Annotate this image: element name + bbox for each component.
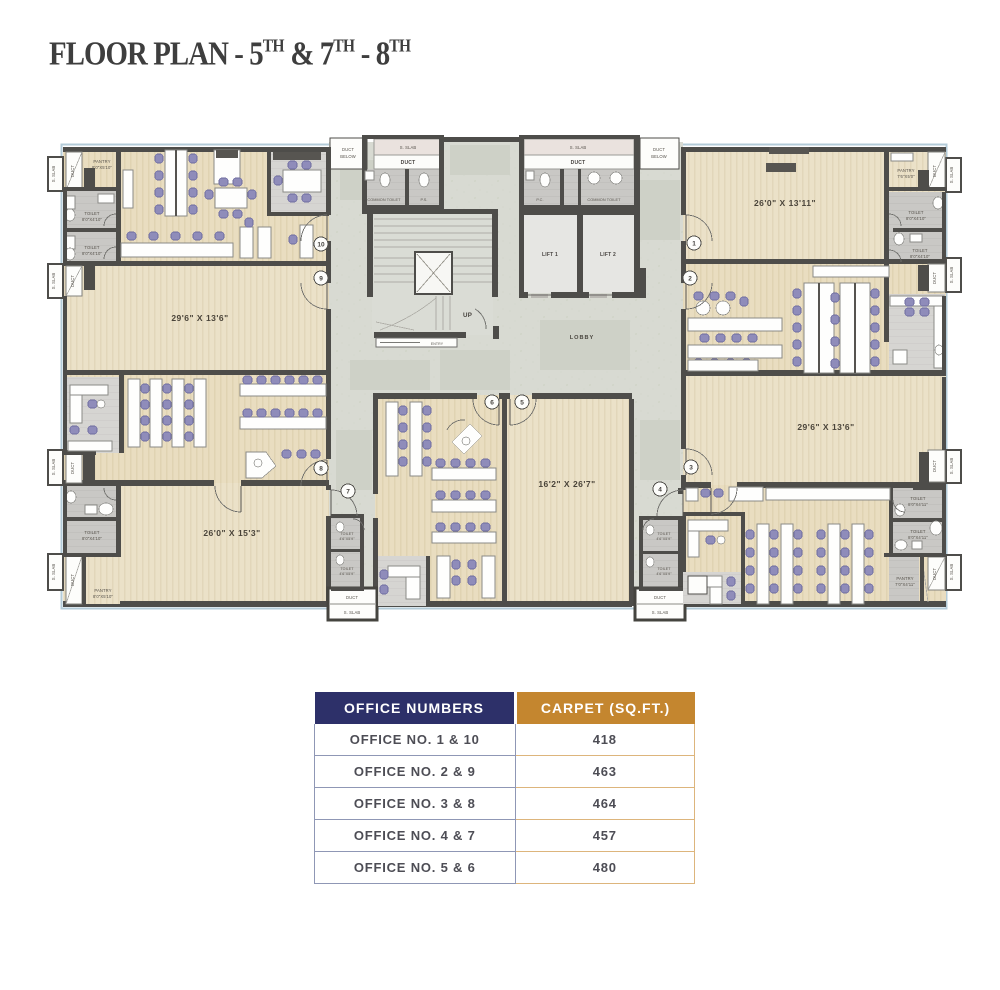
svg-text:5: 5 <box>520 400 524 407</box>
svg-text:S. SLAB: S. SLAB <box>949 267 954 284</box>
svg-text:8'0"X5'10": 8'0"X5'10" <box>93 594 113 599</box>
svg-text:S. SLAB: S. SLAB <box>51 166 56 183</box>
svg-text:7'0"X4'11": 7'0"X4'11" <box>895 582 915 587</box>
svg-text:P.S.: P.S. <box>420 198 427 202</box>
svg-text:TOILET: TOILET <box>912 248 928 253</box>
svg-text:TOILET: TOILET <box>657 532 671 536</box>
svg-text:6: 6 <box>490 400 494 407</box>
svg-text:TOILET: TOILET <box>84 530 100 535</box>
svg-text:PANTRY: PANTRY <box>93 159 110 164</box>
svg-text:TOILET: TOILET <box>84 245 100 250</box>
svg-text:S. SLAB: S. SLAB <box>949 167 954 184</box>
svg-text:DUCT: DUCT <box>70 574 75 586</box>
svg-text:8: 8 <box>319 466 323 473</box>
svg-text:8'0"X4'10": 8'0"X4'10" <box>82 536 102 541</box>
svg-text:29'6" X 13'6": 29'6" X 13'6" <box>797 422 854 432</box>
svg-text:DUCT: DUCT <box>932 165 937 177</box>
svg-text:COMMON TOILET: COMMON TOILET <box>587 198 621 202</box>
svg-text:LOBBY: LOBBY <box>570 335 595 341</box>
svg-text:TOILET: TOILET <box>340 532 354 536</box>
svg-text:4'6"X5'9": 4'6"X5'9" <box>339 537 355 541</box>
svg-text:S. SLAB: S. SLAB <box>570 145 587 150</box>
svg-text:TOILET: TOILET <box>908 210 924 215</box>
svg-text:8'0"X4'10": 8'0"X4'10" <box>910 254 930 259</box>
svg-text:16'2" X 26'7": 16'2" X 26'7" <box>538 479 595 489</box>
svg-text:DUCT: DUCT <box>571 160 586 166</box>
svg-text:LIFT 2: LIFT 2 <box>600 252 616 258</box>
svg-text:TOILET: TOILET <box>910 496 926 501</box>
svg-text:8'0"X4'10": 8'0"X4'10" <box>82 217 102 222</box>
svg-text:PANTRY: PANTRY <box>896 576 913 581</box>
svg-text:8'0"X4'10": 8'0"X4'10" <box>906 216 926 221</box>
svg-text:P.C.: P.C. <box>536 198 543 202</box>
svg-text:DUCT: DUCT <box>932 460 937 472</box>
svg-text:COMMON TOILET: COMMON TOILET <box>367 198 401 202</box>
svg-text:TOILET: TOILET <box>910 529 926 534</box>
svg-text:DUCT: DUCT <box>70 275 75 287</box>
svg-text:26'0" X 15'3": 26'0" X 15'3" <box>203 528 260 538</box>
svg-text:S. SLAB: S. SLAB <box>949 458 954 475</box>
svg-text:3: 3 <box>689 465 693 472</box>
svg-text:8'0"X4'11": 8'0"X4'11" <box>908 535 928 540</box>
svg-text:8'0"X5'10": 8'0"X5'10" <box>92 165 112 170</box>
svg-text:9: 9 <box>319 276 323 283</box>
svg-text:PANTRY: PANTRY <box>94 588 111 593</box>
svg-text:DUCT: DUCT <box>654 595 666 600</box>
svg-text:S. SLAB: S. SLAB <box>400 145 417 150</box>
svg-text:S. SLAB: S. SLAB <box>949 564 954 581</box>
svg-text:4'6"X5'9": 4'6"X5'9" <box>656 537 672 541</box>
svg-text:7: 7 <box>346 489 350 496</box>
svg-text:2: 2 <box>688 276 692 283</box>
svg-text:LIFT 1: LIFT 1 <box>542 252 558 258</box>
svg-text:S. SLAB: S. SLAB <box>51 273 56 290</box>
svg-text:10: 10 <box>317 242 325 249</box>
svg-text:26'0" X 13'11": 26'0" X 13'11" <box>754 198 816 208</box>
svg-text:4'6"X5'9": 4'6"X5'9" <box>339 572 355 576</box>
svg-text:DUCT: DUCT <box>932 272 937 284</box>
svg-text:4'6"X5'9": 4'6"X5'9" <box>656 572 672 576</box>
svg-text:S. SLAB: S. SLAB <box>51 564 56 581</box>
svg-text:BELOW: BELOW <box>340 154 356 159</box>
svg-text:DUCT: DUCT <box>346 595 358 600</box>
svg-text:DUCT: DUCT <box>70 165 75 177</box>
svg-text:TOILET: TOILET <box>340 567 354 571</box>
svg-text:S. SLAB: S. SLAB <box>51 459 56 476</box>
svg-text:1: 1 <box>692 241 696 248</box>
svg-text:DUCT: DUCT <box>932 568 937 580</box>
svg-text:7'6"X5'0": 7'6"X5'0" <box>897 174 915 179</box>
svg-text:4: 4 <box>658 487 662 494</box>
svg-text:S. SLAB: S. SLAB <box>652 610 669 615</box>
svg-text:29'6" X 13'6": 29'6" X 13'6" <box>171 313 228 323</box>
svg-text:DUCT: DUCT <box>653 147 665 152</box>
svg-text:DUCT: DUCT <box>401 160 416 166</box>
svg-text:DUCT: DUCT <box>342 147 354 152</box>
svg-text:TOILET: TOILET <box>657 567 671 571</box>
svg-text:8'0"X4'11": 8'0"X4'11" <box>908 502 928 507</box>
svg-text:BELOW: BELOW <box>651 154 667 159</box>
svg-text:ENTRY: ENTRY <box>431 342 444 346</box>
svg-text:PANTRY: PANTRY <box>897 168 914 173</box>
svg-text:UP: UP <box>463 312 472 319</box>
svg-text:DUCT: DUCT <box>70 462 75 474</box>
svg-text:8'0"X4'10": 8'0"X4'10" <box>82 251 102 256</box>
svg-text:S. SLAB: S. SLAB <box>344 610 361 615</box>
svg-text:TOILET: TOILET <box>84 211 100 216</box>
